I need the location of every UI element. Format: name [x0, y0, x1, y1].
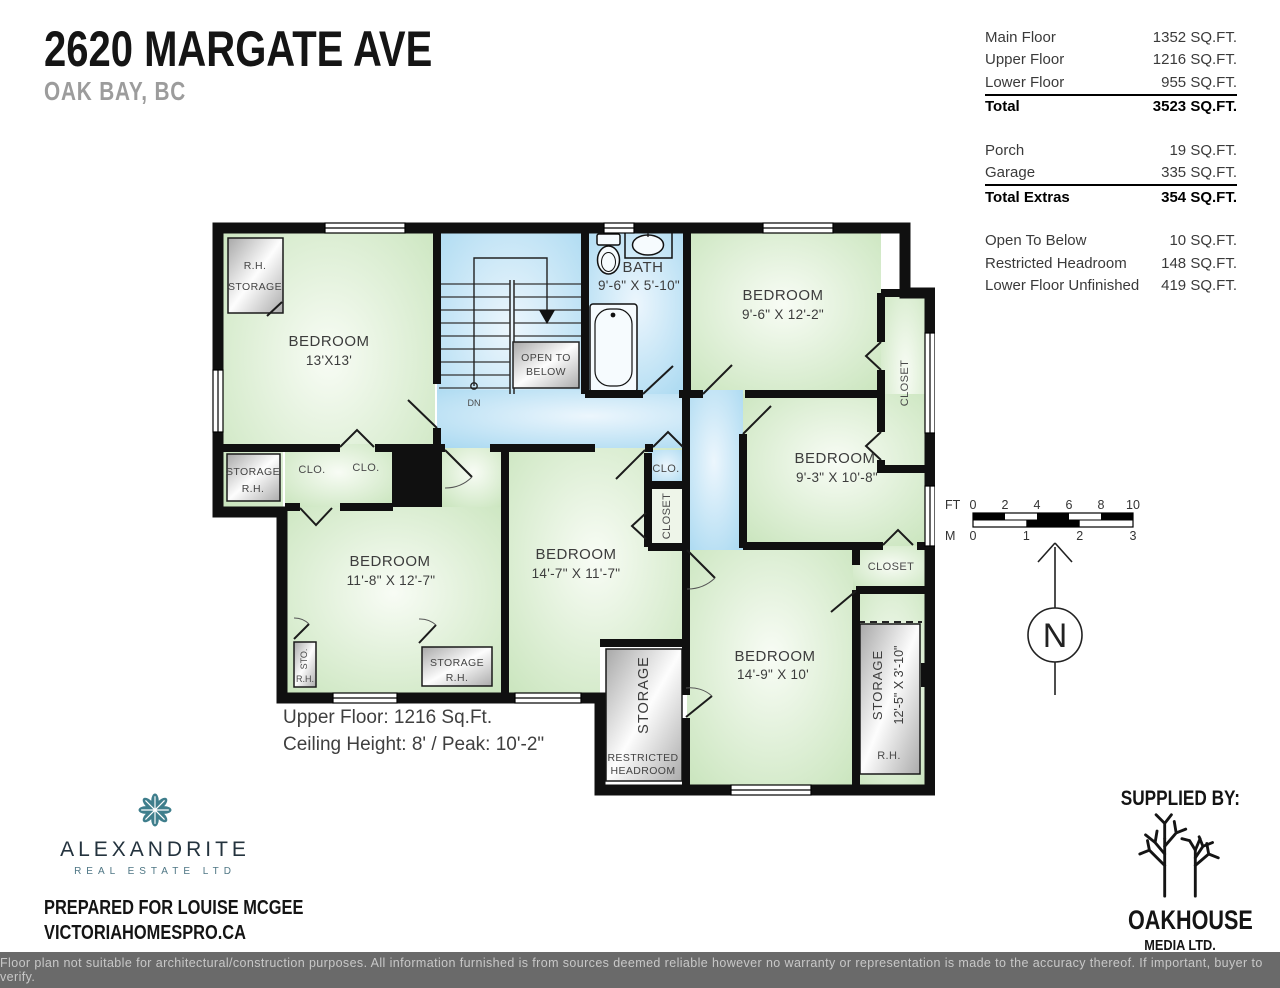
agency-logo: ALEXANDRITE REAL ESTATE LTD [40, 793, 270, 877]
room-dims: 9'-6" X 5'-10" [598, 278, 680, 293]
dn-label: DN [468, 398, 481, 408]
toilet-tank-icon [597, 234, 620, 245]
storage-label: R.H. [244, 260, 267, 272]
room-label: BEDROOM [734, 648, 815, 665]
room-label: BEDROOM [288, 333, 369, 350]
table-row: Restricted Headroom148 SQ.FT. [985, 252, 1237, 275]
storage-label: STORAGE [226, 466, 280, 478]
svg-text:8: 8 [1098, 498, 1105, 512]
clo-label: CLO. [352, 462, 379, 474]
table-row-total: Total3523 SQ.FT. [985, 94, 1237, 119]
area-table: Main Floor1352 SQ.FT. Upper Floor1216 SQ… [985, 26, 1237, 297]
room-label: BEDROOM [349, 553, 430, 570]
table-row: Open To Below10 SQ.FT. [985, 230, 1237, 253]
room-dims: 9'-6" X 12'-2" [742, 307, 824, 322]
storage-label: R.H. [296, 674, 314, 684]
table-row: Upper Floor1216 SQ.FT. [985, 49, 1237, 72]
media-name: OAKHOUSE [1128, 905, 1232, 936]
restricted-label: RESTRICTED [607, 752, 678, 764]
room-label: BEDROOM [535, 546, 616, 563]
table-row-total: Total Extras354 SQ.FT. [985, 184, 1237, 209]
oakhouse-tree-icon [1128, 810, 1232, 898]
scale-m-label: M [945, 529, 955, 543]
room-dims: 14'-7" X 11'-7" [532, 566, 621, 581]
open-to-below-label: OPEN TO [521, 352, 571, 364]
table-row: Lower Floor955 SQ.FT. [985, 71, 1237, 94]
agency-subtitle: REAL ESTATE LTD [40, 866, 270, 877]
open-to-below-label: BELOW [526, 366, 566, 378]
north-arrow-icon: N [1008, 535, 1102, 705]
svg-text:3: 3 [1130, 529, 1137, 543]
disclaimer-bar: Floor plan not suitable for architectura… [0, 952, 1280, 988]
page-title: 2620 MARGATE AVE [44, 20, 432, 78]
sink-icon [633, 235, 664, 255]
svg-text:4: 4 [1034, 498, 1041, 512]
storage-label: STORAGE [636, 656, 652, 734]
storage-label: STORAGE [228, 281, 282, 293]
room-label: BEDROOM [794, 450, 875, 467]
website: VICTORIAHOMESPRO.CA [44, 922, 246, 945]
storage-label: R.H. [446, 672, 469, 684]
table-row: Main Floor1352 SQ.FT. [985, 26, 1237, 49]
room-dims: 14'-9" X 10' [737, 667, 809, 682]
closet-label: CLOSET [661, 493, 673, 539]
open-to-below-box [513, 342, 579, 388]
supplied-by-label: SUPPLIED BY: [1035, 787, 1240, 811]
room-dims: 9'-3" X 10'-8" [796, 470, 878, 485]
svg-text:6: 6 [1066, 498, 1073, 512]
table-row: Porch19 SQ.FT. [985, 139, 1237, 162]
svg-text:0: 0 [970, 529, 977, 543]
plan-notes: Upper Floor: 1216 Sq.Ft. Ceiling Height:… [283, 704, 544, 758]
north-letter: N [1043, 617, 1068, 655]
storage-label: STORAGE [870, 650, 885, 720]
room-dims: 13'X13' [306, 353, 352, 368]
plan-note-area: Upper Floor: 1216 Sq.Ft. [283, 704, 544, 731]
prepared-for: PREPARED FOR LOUISE MCGEE [44, 897, 303, 920]
svg-text:10: 10 [1126, 498, 1140, 512]
room-label: BATH [623, 259, 664, 276]
clo-label: CLO. [298, 464, 325, 476]
room-label: BEDROOM [742, 287, 823, 304]
scale-bar-cells [973, 513, 1133, 527]
scale-ft-label: FT [945, 498, 961, 512]
svg-text:0: 0 [970, 498, 977, 512]
closet-label: CLOSET [868, 561, 914, 573]
page-subtitle: OAK BAY, BC [44, 76, 186, 107]
storage-label: R.H. [877, 750, 901, 762]
disclaimer-text: Floor plan not suitable for architectura… [0, 956, 1280, 984]
storage-dims: 12'-5" X 3'-10" [892, 646, 906, 725]
chimney-block [392, 444, 442, 507]
storage-label: R.H. [242, 483, 265, 495]
alexandrite-rosette-icon [138, 793, 172, 827]
room-dims: 11'-8" X 12'-7" [347, 573, 436, 588]
closet-label: CLOSET [899, 360, 911, 406]
table-row: Lower Floor Unfinished419 SQ.FT. [985, 275, 1237, 298]
plan-note-ceiling: Ceiling Height: 8' / Peak: 10'-2" [283, 731, 544, 758]
media-logo: OAKHOUSE MEDIA LTD. [1115, 810, 1245, 954]
agency-name: ALEXANDRITE [40, 838, 270, 862]
svg-text:2: 2 [1002, 498, 1009, 512]
storage-label: STORAGE [430, 657, 484, 669]
restricted-label: HEADROOM [610, 765, 675, 777]
clo-label: CLO. [652, 463, 679, 475]
storage-label: STO. [299, 649, 309, 670]
table-row: Garage335 SQ.FT. [985, 162, 1237, 185]
